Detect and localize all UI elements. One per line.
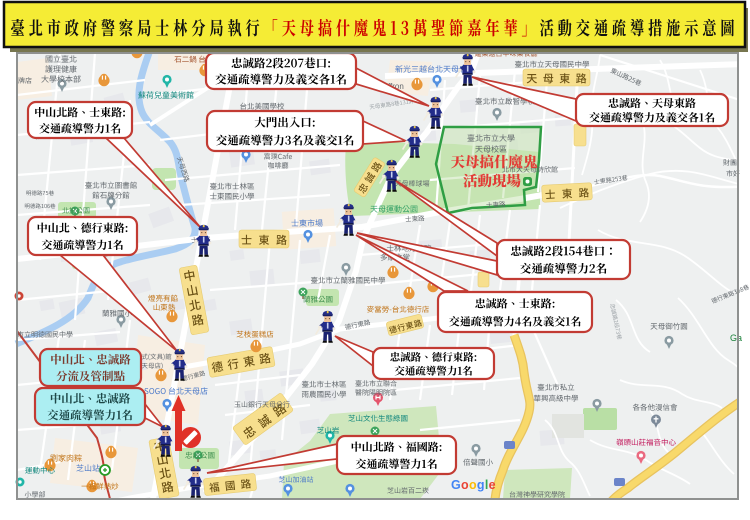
svg-text:Ga: Ga bbox=[730, 333, 742, 343]
svg-text:Google: Google bbox=[451, 478, 496, 492]
